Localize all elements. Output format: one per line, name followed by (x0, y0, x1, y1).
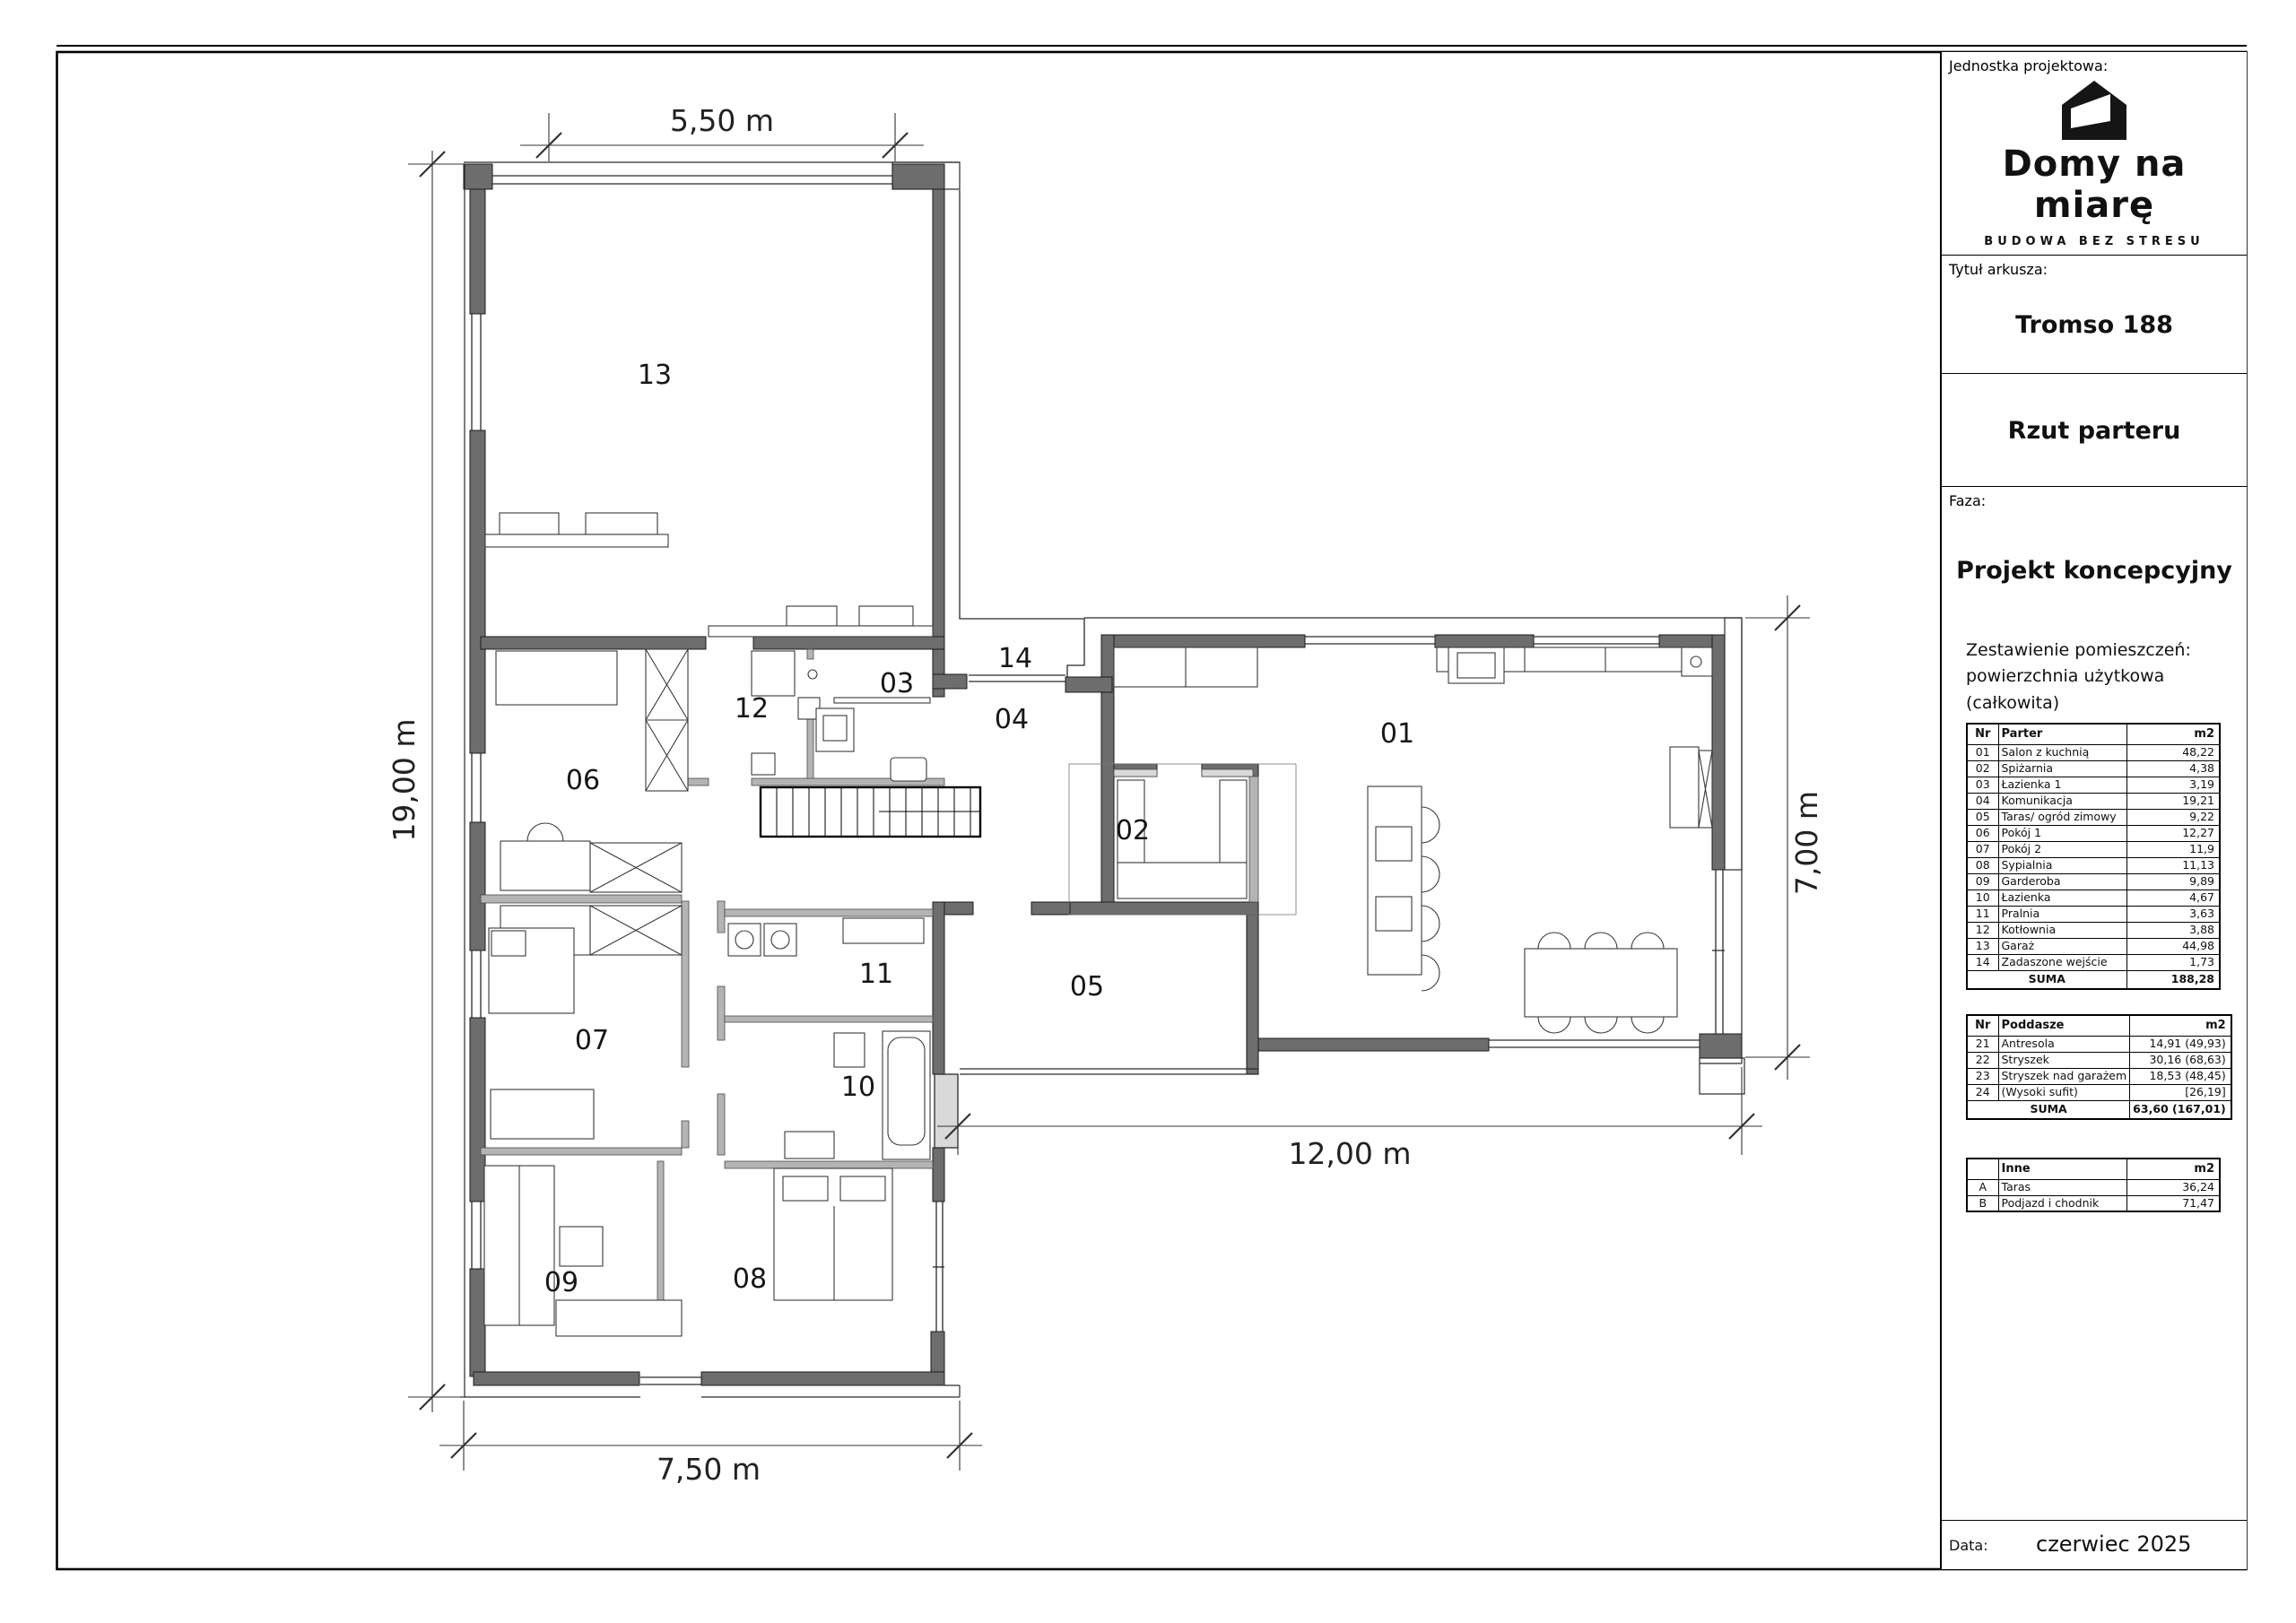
cell: 3,63 (2126, 906, 2220, 922)
cell: 9,22 (2126, 809, 2220, 825)
cell: 11,9 (2126, 841, 2220, 857)
cell: B (1967, 1195, 1998, 1211)
header-cell: m2 (2130, 1015, 2231, 1036)
room08-bed (774, 1168, 892, 1300)
back-door (640, 1377, 701, 1384)
table-row: 14Zadaszone wejście1,73 (1967, 954, 2220, 970)
room-label-06: 06 (566, 765, 600, 796)
header-cell: m2 (2126, 724, 2220, 744)
table-row: 02Spiżarnia4,38 (1967, 760, 2220, 777)
table-row: 10Łazienka4,67 (1967, 890, 2220, 906)
garage-door (492, 176, 892, 184)
cell: Kotłownia (1998, 922, 2126, 938)
room-label-08: 08 (733, 1263, 767, 1295)
table-row: 05Taras/ ogród zimowy9,22 (1967, 809, 2220, 825)
kitchen-island (1368, 786, 1439, 991)
room-label-13: 13 (638, 360, 672, 391)
cell: 30,16 (68,63) (2130, 1052, 2231, 1068)
terrace-glazing (960, 1069, 1258, 1074)
table-row: ATaras36,24 (1967, 1179, 2220, 1195)
table-row: 21Antresola14,91 (49,93) (1967, 1036, 2231, 1052)
cell: 21 (1967, 1036, 1998, 1052)
room-label-03: 03 (880, 668, 914, 699)
cell: Komunikacja (1998, 793, 2126, 809)
entrance-door (969, 675, 1065, 681)
cell: Łazienka 1 (1998, 777, 2126, 793)
stairs (761, 787, 980, 837)
parter-table: NrParterm201Salon z kuchnią48,2202Spiżar… (1966, 723, 2221, 990)
window-room06 (472, 753, 481, 822)
table-row: 24(Wysoki sufit)[26,19] (1967, 1084, 2231, 1100)
table-row: 11Pralnia3,63 (1967, 906, 2220, 922)
kitchen (1437, 647, 1712, 828)
cell: A (1967, 1179, 1998, 1195)
table-row: 13Garaż44,98 (1967, 938, 2220, 954)
cell: (Wysoki sufit) (1998, 1084, 2130, 1100)
rooms-heading: Zestawienie pomieszczeń: powierzchnia uż… (1966, 638, 2247, 716)
header-cell: m2 (2126, 1159, 2220, 1179)
table-header-row: NrParterm2 (1967, 724, 2220, 744)
cell: 1,73 (2126, 954, 2220, 970)
title-block: Jednostka projektowa: Domy na miarę BUDO… (1940, 52, 2247, 1569)
dim-wing-height: 7,00 m (1789, 791, 1824, 895)
room-label-05: 05 (1070, 971, 1104, 1002)
title-block-logo-section: Jednostka projektowa: Domy na miarę BUDO… (1942, 52, 2247, 256)
room-label-11: 11 (859, 959, 893, 990)
cell: Zadaszone wejście (1998, 954, 2126, 970)
suma-value-cell: 63,60 (167,01) (2130, 1100, 2231, 1119)
cell: 05 (1967, 809, 1998, 825)
cell: Salon z kuchnią (1998, 744, 2126, 760)
cell: 4,38 (2126, 760, 2220, 777)
room-label-07: 07 (575, 1025, 609, 1056)
table-row: BPodjazd i chodnik71,47 (1967, 1195, 2220, 1211)
cell: 44,98 (2126, 938, 2220, 954)
cell: 36,24 (2126, 1179, 2220, 1195)
window-garage-left (472, 314, 481, 430)
room-label-10: 10 (841, 1072, 875, 1103)
window-room07 (472, 950, 481, 1018)
cell: 3,88 (2126, 922, 2220, 938)
sofa (1114, 647, 1257, 687)
brand-name: Domy na miarę (1942, 143, 2247, 226)
table-row: 03Łazienka 13,19 (1967, 777, 2220, 793)
window-room08 (933, 1202, 944, 1332)
cell: 13 (1967, 938, 1998, 954)
dim-left-height: 19,00 m (387, 718, 422, 841)
room03-fixtures (816, 698, 930, 781)
house-logo-icon (2062, 81, 2126, 140)
title-block-date-section: Data: czerwiec 2025 (1942, 1520, 2247, 1569)
cell: Taras/ ogród zimowy (1998, 809, 2126, 825)
room09-furniture (484, 1166, 682, 1336)
window-room09 (472, 1202, 481, 1269)
brand-logo: Domy na miarę BUDOWA BEZ STRESU (1942, 81, 2247, 248)
cell: 12 (1967, 922, 1998, 938)
cell: 22 (1967, 1052, 1998, 1068)
jednostka-label: Jednostka projektowa: (1949, 57, 2108, 74)
table-suma-row: SUMA63,60 (167,01) (1967, 1100, 2231, 1119)
entrance-roof-line (960, 190, 1084, 677)
cell: 09 (1967, 873, 1998, 890)
sheet-frame (57, 46, 2247, 1569)
cell: Pokój 1 (1998, 825, 2126, 841)
header-cell: Nr (1967, 1015, 1998, 1036)
table-header-row: NrPoddaszem2 (1967, 1015, 2231, 1036)
cell: Stryszek nad garażem (1998, 1068, 2130, 1084)
cell: 01 (1967, 744, 1998, 760)
suma-label-cell: SUMA (1967, 970, 2126, 989)
title-block-drawing-section: Rzut parteru (1942, 374, 2247, 487)
table-row: 06Pokój 112,27 (1967, 825, 2220, 841)
cell: 48,22 (2126, 744, 2220, 760)
cell: 02 (1967, 760, 1998, 777)
cell: 14,91 (49,93) (2130, 1036, 2231, 1052)
cell: 12,27 (2126, 825, 2220, 841)
cell: 04 (1967, 793, 1998, 809)
cell: Pralnia (1998, 906, 2126, 922)
table-header-row: Innem2 (1967, 1159, 2220, 1179)
window-01-south (1489, 1040, 1700, 1047)
table-row: 22Stryszek30,16 (68,63) (1967, 1052, 2231, 1068)
room-label-14: 14 (998, 643, 1032, 674)
title-block-sheet-section: Tytuł arkusza: Tromso 188 (1942, 256, 2247, 374)
cell: Pokój 2 (1998, 841, 2126, 857)
phase-title: Projekt koncepcyjny (1942, 557, 2247, 585)
cell: Garaż (1998, 938, 2126, 954)
faza-label: Faza: (1949, 492, 1986, 509)
cell: 14 (1967, 954, 1998, 970)
cell: Garderoba (1998, 873, 2126, 890)
cell: 06 (1967, 825, 1998, 841)
cell: 71,47 (2126, 1195, 2220, 1211)
window-01-top-b (1534, 637, 1659, 644)
header-cell: Nr (1967, 724, 1998, 744)
dim-wing-width: 12,00 m (1288, 1136, 1411, 1171)
brand-tagline: BUDOWA BEZ STRESU (1942, 235, 2247, 248)
sheet-name: Tromso 188 (1942, 311, 2247, 339)
table-row: 04Komunikacja19,21 (1967, 793, 2220, 809)
suma-value-cell: 188,28 (2126, 970, 2220, 989)
room-label-09: 09 (544, 1267, 578, 1298)
table-row: 07Pokój 211,9 (1967, 841, 2220, 857)
cell: Stryszek (1998, 1052, 2130, 1068)
table-row: 01Salon z kuchnią48,22 (1967, 744, 2220, 760)
table-suma-row: SUMA188,28 (1967, 970, 2220, 989)
room-label-02: 02 (1116, 815, 1150, 846)
window-01-top-a (1305, 637, 1435, 644)
drawing-sheet: 13 12 03 14 04 01 06 02 05 07 11 10 09 0… (0, 0, 2296, 1623)
cell: 11,13 (2126, 857, 2220, 873)
window-01-east (1712, 870, 1725, 1034)
table-row: 23Stryszek nad garażem18,53 (48,45) (1967, 1068, 2231, 1084)
cell: Łazienka (1998, 890, 2126, 906)
cell: Sypialnia (1998, 857, 2126, 873)
drawing-title: Rzut parteru (1942, 417, 2247, 445)
cell: 9,89 (2126, 873, 2220, 890)
header-cell: Parter (1998, 724, 2126, 744)
table-row: 12Kotłownia3,88 (1967, 922, 2220, 938)
cell: [26,19] (2130, 1084, 2231, 1100)
cell: 24 (1967, 1084, 1998, 1100)
title-block-phase-section: Faza: Projekt koncepcyjny Zestawienie po… (1942, 487, 2247, 1520)
cell: 07 (1967, 841, 1998, 857)
cell: 08 (1967, 857, 1998, 873)
rooms-heading-line2: powierzchnia użytkowa (całkowita) (1966, 666, 2164, 712)
header-cell: Inne (1998, 1159, 2126, 1179)
header-cell (1967, 1159, 1998, 1179)
room-label-01: 01 (1380, 718, 1414, 750)
cell: Spiżarnia (1998, 760, 2126, 777)
tytul-label: Tytuł arkusza: (1949, 261, 2048, 278)
table-row: 09Garderoba9,89 (1967, 873, 2220, 890)
poddasze-table: NrPoddaszem221Antresola14,91 (49,93)22St… (1966, 1014, 2232, 1120)
table-row: 08Sypialnia11,13 (1967, 857, 2220, 873)
cell: Podjazd i chodnik (1998, 1195, 2126, 1211)
garage-furniture (485, 513, 933, 637)
data-label: Data: (1949, 1537, 1988, 1554)
room-label-04: 04 (995, 704, 1029, 735)
cell: 19,21 (2126, 793, 2220, 809)
cell: 03 (1967, 777, 1998, 793)
room-label-12: 12 (735, 693, 769, 725)
rooms-heading-line1: Zestawienie pomieszczeń: (1966, 640, 2191, 660)
cell: 3,19 (2126, 777, 2220, 793)
dim-garage-width: 5,50 m (670, 103, 774, 138)
suma-label-cell: SUMA (1967, 1100, 2130, 1119)
cell: 4,67 (2126, 890, 2220, 906)
dining-table (1525, 933, 1677, 1033)
date-value: czerwiec 2025 (2036, 1532, 2191, 1557)
cell: 10 (1967, 890, 1998, 906)
cell: Antresola (1998, 1036, 2130, 1052)
inne-table: Innem2ATaras36,24BPodjazd i chodnik71,47 (1966, 1158, 2221, 1212)
cell: 11 (1967, 906, 1998, 922)
cell: 23 (1967, 1068, 1998, 1084)
cell: Taras (1998, 1179, 2126, 1195)
dim-bottom-width: 7,50 m (657, 1452, 761, 1487)
room11-appliances (728, 918, 924, 956)
header-cell: Poddasze (1998, 1015, 2130, 1036)
cell: 18,53 (48,45) (2130, 1068, 2231, 1084)
